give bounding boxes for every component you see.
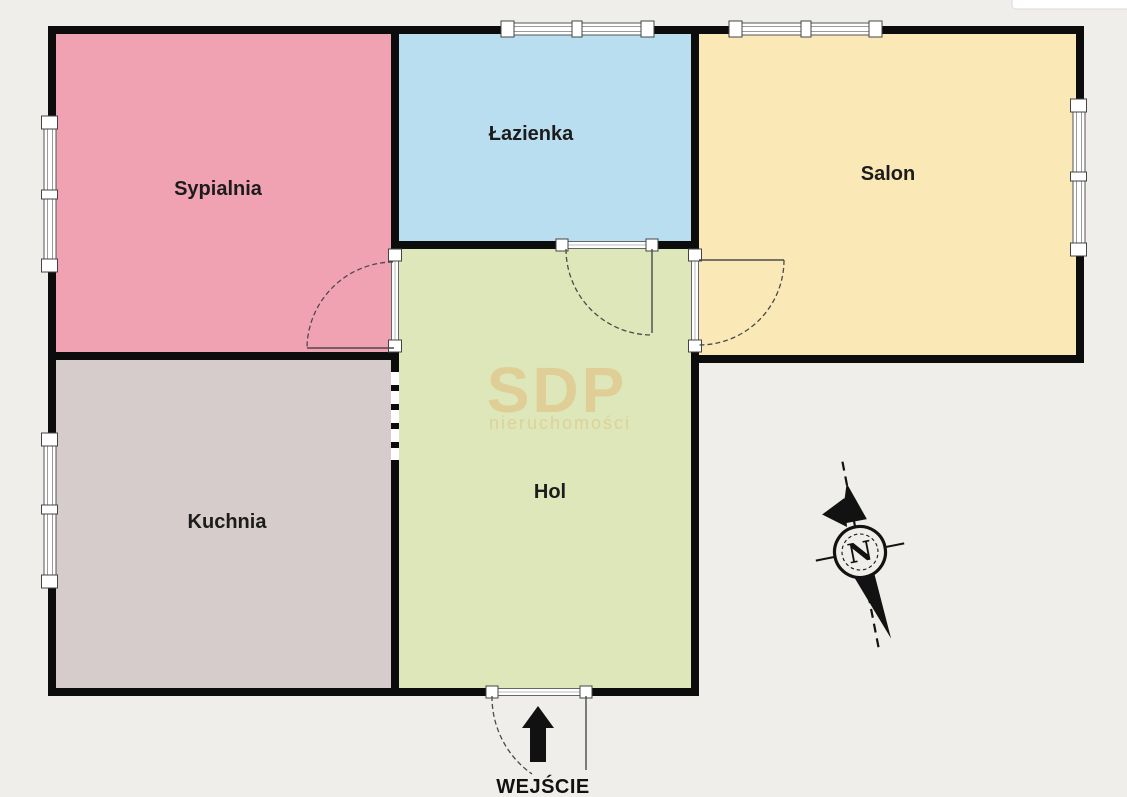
watermark-subtitle: nieruchomości	[489, 413, 631, 433]
label-salon: Salon	[861, 163, 915, 185]
door-jamb	[689, 340, 702, 352]
label-hol: Hol	[534, 481, 566, 503]
label-sypialnia: Sypialnia	[174, 178, 263, 200]
window-mullion	[801, 21, 811, 37]
window-cap	[42, 259, 58, 272]
window-cap	[869, 21, 882, 37]
window-mullion	[572, 21, 582, 37]
window-cap	[42, 116, 58, 129]
window-cap	[42, 433, 58, 446]
room-salon	[699, 34, 1076, 355]
floor-plan-page: SDP nieruchomości Sypialnia Łazienka Sal…	[0, 0, 1127, 797]
label-lazienka: Łazienka	[489, 123, 574, 145]
watermark: SDP nieruchomości	[487, 354, 631, 433]
window-cap	[501, 21, 514, 37]
window-salon-top	[729, 21, 882, 37]
window-lazienka	[501, 21, 654, 37]
floor-plan-drawing: SDP nieruchomości Sypialnia Łazienka Sal…	[0, 0, 1127, 797]
window-cap	[1071, 243, 1087, 256]
window-mullion	[42, 190, 58, 199]
window-mullion	[1071, 172, 1087, 181]
window-cap	[42, 575, 58, 588]
label-kuchnia: Kuchnia	[188, 511, 268, 533]
door-jamb	[389, 340, 402, 352]
window-salon-right	[1071, 99, 1087, 256]
door-jamb	[689, 249, 702, 261]
window-kuchnia	[42, 433, 58, 588]
window-mullion	[42, 505, 58, 514]
window-cap	[729, 21, 742, 37]
arrow-shaft	[530, 728, 546, 762]
corner-chip	[1012, 0, 1127, 9]
room-hol	[399, 249, 691, 688]
window-cap	[641, 21, 654, 37]
label-entrance: WEJŚCIE	[496, 774, 590, 797]
door-jamb	[389, 249, 402, 261]
window-cap	[1071, 99, 1087, 112]
window-sypialnia	[42, 116, 58, 272]
